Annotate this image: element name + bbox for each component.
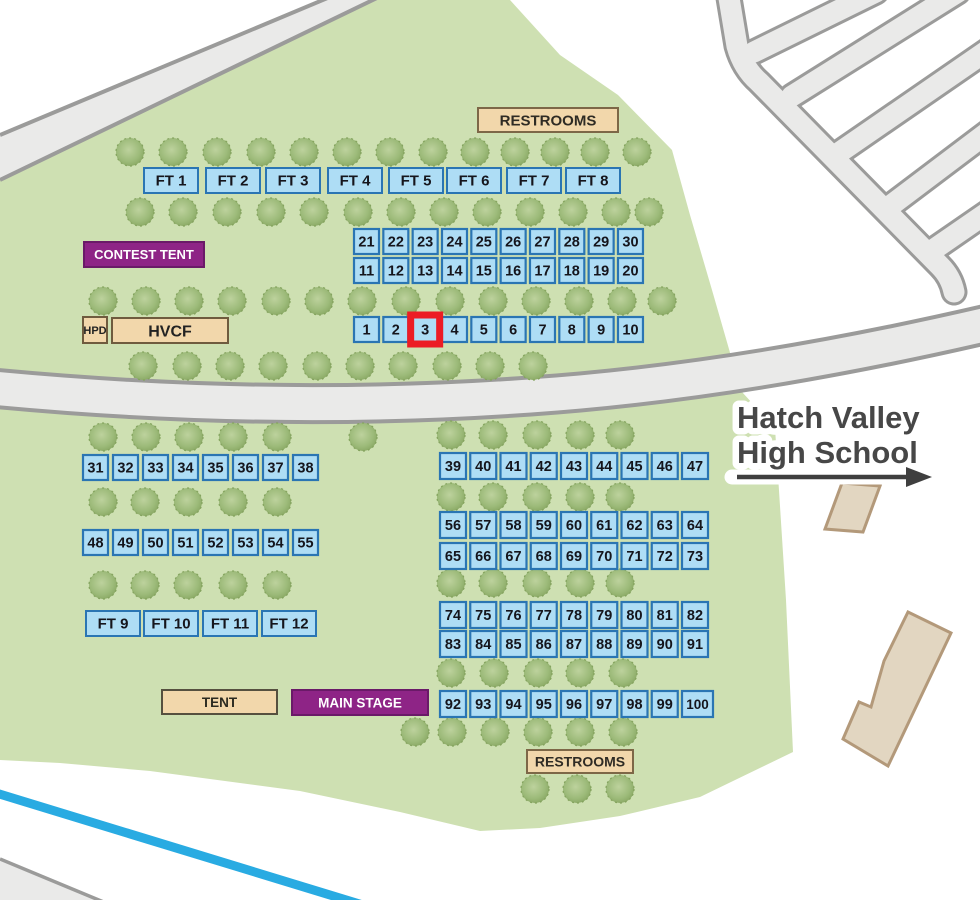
booth-53-label: 53 [237,536,253,552]
tree [89,488,117,516]
booth-78-label: 78 [566,608,582,624]
tree [648,287,676,315]
tree [219,571,247,599]
booth-17-label: 17 [534,264,550,280]
tree [438,718,466,746]
tree [89,571,117,599]
booth-54-label: 54 [267,536,283,552]
tree [346,352,374,380]
booth-69-label: 69 [566,549,582,565]
booth-20-label: 20 [622,264,638,280]
food-tent-ft-11-label: FT 11 [211,616,249,633]
tree [501,138,529,166]
booth-46-label: 46 [657,459,673,475]
booth-51-label: 51 [177,536,193,552]
tree [259,352,287,380]
booth-65-label: 65 [445,549,461,565]
booth-47-label: 47 [687,459,703,475]
building [843,612,951,766]
booth-32-label: 32 [117,461,133,477]
booth-34-label: 34 [177,461,193,477]
tree [219,423,247,451]
tree [566,569,594,597]
booth-41-label: 41 [505,459,521,475]
tree [479,483,507,511]
tree [519,352,547,380]
tree [481,718,509,746]
tree [563,775,591,803]
booth-57-label: 57 [475,518,491,534]
food-tent-ft-10-label: FT 10 [151,616,190,633]
tree [89,423,117,451]
food-tent-ft-5-label: FT 5 [401,173,432,190]
booth-36-label: 36 [237,461,253,477]
tree [173,352,201,380]
booth-40-label: 40 [475,459,491,475]
building [825,483,880,532]
tree [581,138,609,166]
hpd-label: HPD [83,325,106,337]
booth-60-label: 60 [566,518,582,534]
tree [389,352,417,380]
booth-18-label: 18 [564,264,580,280]
tree [174,488,202,516]
tree [522,287,550,315]
restrooms-bottom-label: RESTROOMS [535,754,625,770]
contest-tent-label: CONTEST TENT [94,247,194,262]
restrooms-top-label: RESTROOMS [500,112,597,129]
booth-59-label: 59 [536,518,552,534]
hvcf-label: HVCF [148,323,192,340]
booth-76-label: 76 [505,608,521,624]
booth-92-label: 92 [445,697,461,713]
booth-43-label: 43 [566,459,582,475]
booth-27-label: 27 [534,235,550,251]
tree [419,138,447,166]
tree [175,287,203,315]
tree [263,571,291,599]
food-tent-ft-3-label: FT 3 [278,173,309,190]
booth-3-label: 3 [421,323,429,339]
booth-66-label: 66 [475,549,491,565]
tree [262,287,290,315]
booth-62-label: 62 [626,518,642,534]
booth-25-label: 25 [476,235,492,251]
tree [523,483,551,511]
booth-35-label: 35 [207,461,223,477]
booth-11-label: 11 [359,264,374,280]
tree [606,569,634,597]
booth-67-label: 67 [505,549,521,565]
booth-82-label: 82 [687,608,703,624]
tree [606,775,634,803]
booth-97-label: 97 [596,697,612,713]
tree [523,569,551,597]
tree [89,287,117,315]
tree [203,138,231,166]
tent-label: TENT [202,695,238,710]
booth-56-label: 56 [445,518,461,534]
food-tent-ft-8-label: FT 8 [578,173,609,190]
tree [132,423,160,451]
booth-100-label: 100 [686,697,709,712]
booth-81-label: 81 [657,608,673,624]
road-network-branch [890,132,980,206]
tree [376,138,404,166]
tree [348,287,376,315]
booth-74-label: 74 [445,608,461,624]
tree [566,718,594,746]
booth-49-label: 49 [117,536,133,552]
tree [602,198,630,226]
booth-90-label: 90 [657,637,673,653]
booth-19-label: 19 [593,264,609,280]
booth-29-label: 29 [593,235,609,251]
tree [263,423,291,451]
booth-83-label: 83 [445,637,461,653]
booth-2-label: 2 [392,323,400,339]
tree [606,483,634,511]
booth-7-label: 7 [538,323,546,339]
booth-42-label: 42 [536,459,552,475]
tree [344,198,372,226]
tree [606,421,634,449]
tree [480,659,508,687]
tree [476,352,504,380]
tree [541,138,569,166]
tree [213,198,241,226]
booth-39-label: 39 [445,459,461,475]
tree [349,423,377,451]
tree [175,423,203,451]
tree [479,569,507,597]
booth-4-label: 4 [450,323,458,339]
booth-1-label: 1 [362,323,370,339]
booth-31-label: 31 [87,461,103,477]
food-tent-ft-4-label: FT 4 [340,173,371,190]
tree [635,198,663,226]
booth-93-label: 93 [475,697,491,713]
booth-63-label: 63 [657,518,673,534]
booth-64-label: 64 [687,518,703,534]
tree [257,198,285,226]
booth-72-label: 72 [657,549,673,565]
tree [392,287,420,315]
booth-38-label: 38 [297,461,313,477]
booth-99-label: 99 [657,697,673,713]
booth-28-label: 28 [564,235,580,251]
booth-70-label: 70 [596,549,612,565]
tree [290,138,318,166]
tree [218,287,246,315]
tree [523,421,551,449]
tree [303,352,331,380]
booth-58-label: 58 [505,518,521,534]
tree [333,138,361,166]
booth-91-label: 91 [687,637,703,653]
booth-9-label: 9 [597,323,605,339]
food-tent-ft-7-label: FT 7 [519,173,550,190]
food-tent-ft-12-label: FT 12 [269,616,308,633]
booth-22-label: 22 [388,235,404,251]
tree [169,198,197,226]
tree [159,138,187,166]
booth-98-label: 98 [626,697,642,713]
tree [565,287,593,315]
tree [430,198,458,226]
tree [131,571,159,599]
tree [401,718,429,746]
booth-96-label: 96 [566,697,582,713]
tree [609,659,637,687]
festival-map: Hatch ValleyHatch ValleyHigh SchoolHigh … [0,0,980,900]
booth-10-label: 10 [622,323,638,339]
booth-95-label: 95 [536,697,552,713]
booth-30-label: 30 [622,235,638,251]
booth-23-label: 23 [417,235,433,251]
booth-5-label: 5 [480,323,488,339]
food-tent-ft-2-label: FT 2 [218,173,249,190]
tree [437,483,465,511]
tree [521,775,549,803]
booth-86-label: 86 [536,637,552,653]
booth-45-label: 45 [626,459,642,475]
tree [479,421,507,449]
booth-48-label: 48 [87,536,103,552]
tree [247,138,275,166]
tree [608,287,636,315]
tree [132,287,160,315]
booth-21-label: 21 [358,235,374,251]
tree [437,659,465,687]
tree [566,483,594,511]
tree [566,421,594,449]
booth-88-label: 88 [596,637,612,653]
booth-73-label: 73 [687,549,703,565]
tree [566,659,594,687]
tree [129,352,157,380]
booth-79-label: 79 [596,608,612,624]
tree [473,198,501,226]
tree [524,659,552,687]
booth-77-label: 77 [536,608,552,624]
booth-68-label: 68 [536,549,552,565]
booth-55-label: 55 [297,536,313,552]
booth-26-label: 26 [505,235,521,251]
tree [524,718,552,746]
booth-50-label: 50 [147,536,163,552]
tree [126,198,154,226]
tree [433,352,461,380]
tree [116,138,144,166]
booth-80-label: 80 [626,608,642,624]
school-label: High School [737,435,918,470]
booth-84-label: 84 [475,637,491,653]
tree [131,488,159,516]
booth-6-label: 6 [509,323,517,339]
tree [559,198,587,226]
tree [479,287,507,315]
booth-89-label: 89 [626,637,642,653]
booth-13-label: 13 [417,264,433,280]
tree [609,718,637,746]
booth-12-label: 12 [388,264,404,280]
booth-94-label: 94 [505,697,521,713]
tree [300,198,328,226]
tree [516,198,544,226]
food-tent-ft-1-label: FT 1 [156,173,187,190]
tree [436,287,464,315]
booth-71-label: 71 [626,549,642,565]
booth-24-label: 24 [446,235,462,251]
tree [305,287,333,315]
tree [437,569,465,597]
booth-44-label: 44 [596,459,612,475]
tree [623,138,651,166]
booth-52-label: 52 [207,536,223,552]
food-tent-ft-6-label: FT 6 [459,173,490,190]
booth-14-label: 14 [446,264,462,280]
booth-61-label: 61 [596,518,612,534]
tree [461,138,489,166]
booth-75-label: 75 [475,608,491,624]
tree [387,198,415,226]
booth-87-label: 87 [566,637,582,653]
booth-33-label: 33 [147,461,163,477]
tree [437,421,465,449]
booth-16-label: 16 [505,264,521,280]
festival-map-page: Hatch ValleyHatch ValleyHigh SchoolHigh … [0,0,980,900]
tree [174,571,202,599]
tree [216,352,244,380]
booth-15-label: 15 [476,264,492,280]
booth-8-label: 8 [568,323,576,339]
school-label: Hatch Valley [737,400,920,435]
booth-37-label: 37 [267,461,283,477]
booth-85-label: 85 [505,637,521,653]
tree [263,488,291,516]
tree [219,488,247,516]
main-stage-label: MAIN STAGE [318,695,402,710]
food-tent-ft-9-label: FT 9 [98,616,129,633]
